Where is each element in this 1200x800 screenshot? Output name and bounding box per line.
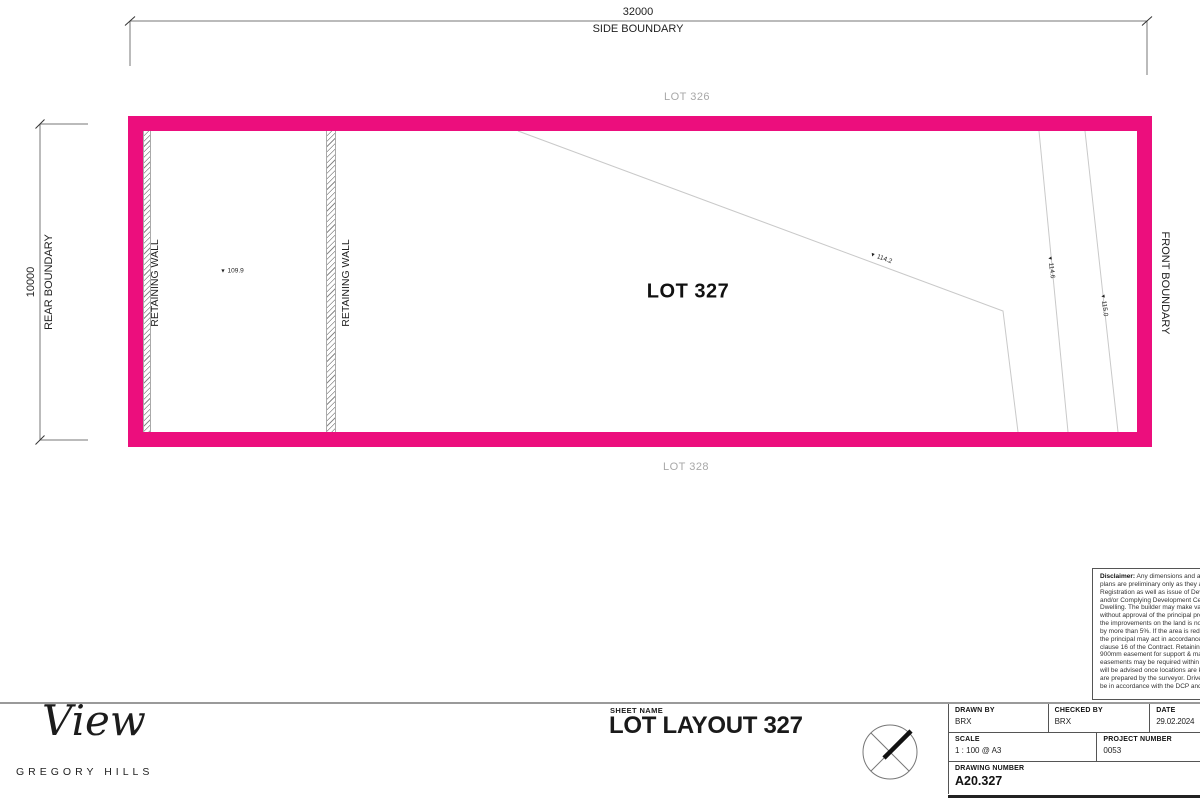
drawing-number-value: A20.327: [955, 774, 1200, 788]
spot-level-marker-icon: ▼: [1099, 293, 1106, 299]
date-label: DATE: [1156, 707, 1200, 714]
plan-linework: [0, 0, 1200, 800]
date-cell: DATE 29.02.2024: [1150, 704, 1200, 732]
spot-level-value: 109.9: [227, 268, 243, 275]
project-number-value: 0053: [1103, 746, 1200, 755]
drawn-by-value: BRX: [955, 717, 1048, 726]
contour-lines: [518, 131, 1118, 432]
title-block-row-3: DRAWING NUMBER A20.327: [949, 762, 1200, 794]
disclaimer-line: Dwelling. The builder may make variation…: [1100, 604, 1200, 612]
scale-value: 1 : 100 @ A3: [955, 746, 1096, 755]
front-boundary-label: FRONT BOUNDARY: [1159, 232, 1171, 335]
spot-level-marker-icon: ▼: [220, 269, 225, 275]
disclaimer-line: plans are preliminary only as they are s…: [1100, 581, 1200, 589]
drawn-by-label: DRAWN BY: [955, 707, 1048, 714]
scale-cell: SCALE 1 : 100 @ A3: [949, 733, 1097, 761]
retaining-wall-label-1: RETAINING WALL: [149, 239, 161, 327]
disclaimer-box: Disclaimer: Any dimensions and areas no …: [1092, 568, 1200, 700]
drawing-number-label: DRAWING NUMBER: [955, 765, 1200, 772]
dimension-top-label: SIDE BOUNDARY: [593, 23, 684, 35]
drawn-by-cell: DRAWN BY BRX: [949, 704, 1049, 732]
logo-subtitle: GREGORY HILLS: [16, 766, 153, 778]
project-number-label: PROJECT NUMBER: [1103, 736, 1200, 743]
disclaimer-line: clause 16 of the Contract. Retaining wal…: [1100, 644, 1200, 652]
disclaimer-line: are prepared by the surveyor. Driveway l…: [1100, 675, 1200, 683]
disclaimer-line: Disclaimer: Any dimensions and areas no: [1100, 573, 1200, 581]
dimension-left-label: REAR BOUNDARY: [43, 234, 55, 330]
dimension-left-value: 10000: [25, 267, 37, 298]
sheet-name-value: LOT LAYOUT 327: [609, 712, 803, 740]
disclaimer-line: 900mm easement for support & maintena: [1100, 651, 1200, 659]
disclaimer-line: without approval of the principal provid…: [1100, 612, 1200, 620]
spot-level-109-9: ▼ 109.9: [220, 268, 244, 275]
disclaimer-line: the principal may act in accordance with…: [1100, 636, 1200, 644]
disclaimer-line: the improvements on the land is not redu…: [1100, 620, 1200, 628]
disclaimer-line: Registration as well as issue of Develop…: [1100, 589, 1200, 597]
contour-line-115-0: [1085, 131, 1118, 432]
disclaimer-line: will be advised once locations are known…: [1100, 667, 1200, 675]
title-block-table: DRAWN BY BRX CHECKED BY BRX DATE 29.02.2…: [948, 704, 1200, 794]
retaining-wall-hatch-2: [326, 131, 336, 432]
logo-view-script: View: [42, 696, 146, 745]
checked-by-cell: CHECKED BY BRX: [1049, 704, 1151, 732]
drawing-sheet: 32000 SIDE BOUNDARY 10000 REAR BOUNDARY …: [0, 0, 1200, 800]
disclaimer-line: be in accordance with the DCP and conse: [1100, 683, 1200, 691]
retaining-wall-label-2: RETAINING WALL: [340, 239, 352, 327]
contour-line-114-2: [518, 131, 1018, 432]
title-block-bottom-rule: [948, 795, 1200, 798]
title-block-row-2: SCALE 1 : 100 @ A3 PROJECT NUMBER 0053: [949, 733, 1200, 762]
disclaimer-heading: Disclaimer:: [1100, 573, 1135, 580]
scale-label: SCALE: [955, 736, 1096, 743]
contour-line-114-6: [1039, 131, 1068, 432]
north-arrow-icon: [863, 725, 917, 779]
adjacent-lot-326-label: LOT 326: [664, 91, 710, 103]
date-value: 29.02.2024: [1156, 717, 1200, 726]
disclaimer-line: easements may be required within lots. S…: [1100, 659, 1200, 667]
drawing-number-cell: DRAWING NUMBER A20.327: [949, 762, 1200, 794]
checked-by-label: CHECKED BY: [1055, 707, 1150, 714]
adjacent-lot-328-label: LOT 328: [663, 461, 709, 473]
disclaimer-line: and/or Complying Development Certificate: [1100, 597, 1200, 605]
lot-boundary: [136, 124, 1145, 440]
project-number-cell: PROJECT NUMBER 0053: [1097, 733, 1200, 761]
dimension-top-value: 32000: [623, 6, 654, 18]
title-block-row-1: DRAWN BY BRX CHECKED BY BRX DATE 29.02.2…: [949, 704, 1200, 733]
spot-level-marker-icon: ▼: [1046, 255, 1053, 261]
lot-327-title: LOT 327: [647, 281, 729, 304]
checked-by-value: BRX: [1055, 717, 1150, 726]
disclaimer-line: by more than 5%. If the area is reduced …: [1100, 628, 1200, 636]
